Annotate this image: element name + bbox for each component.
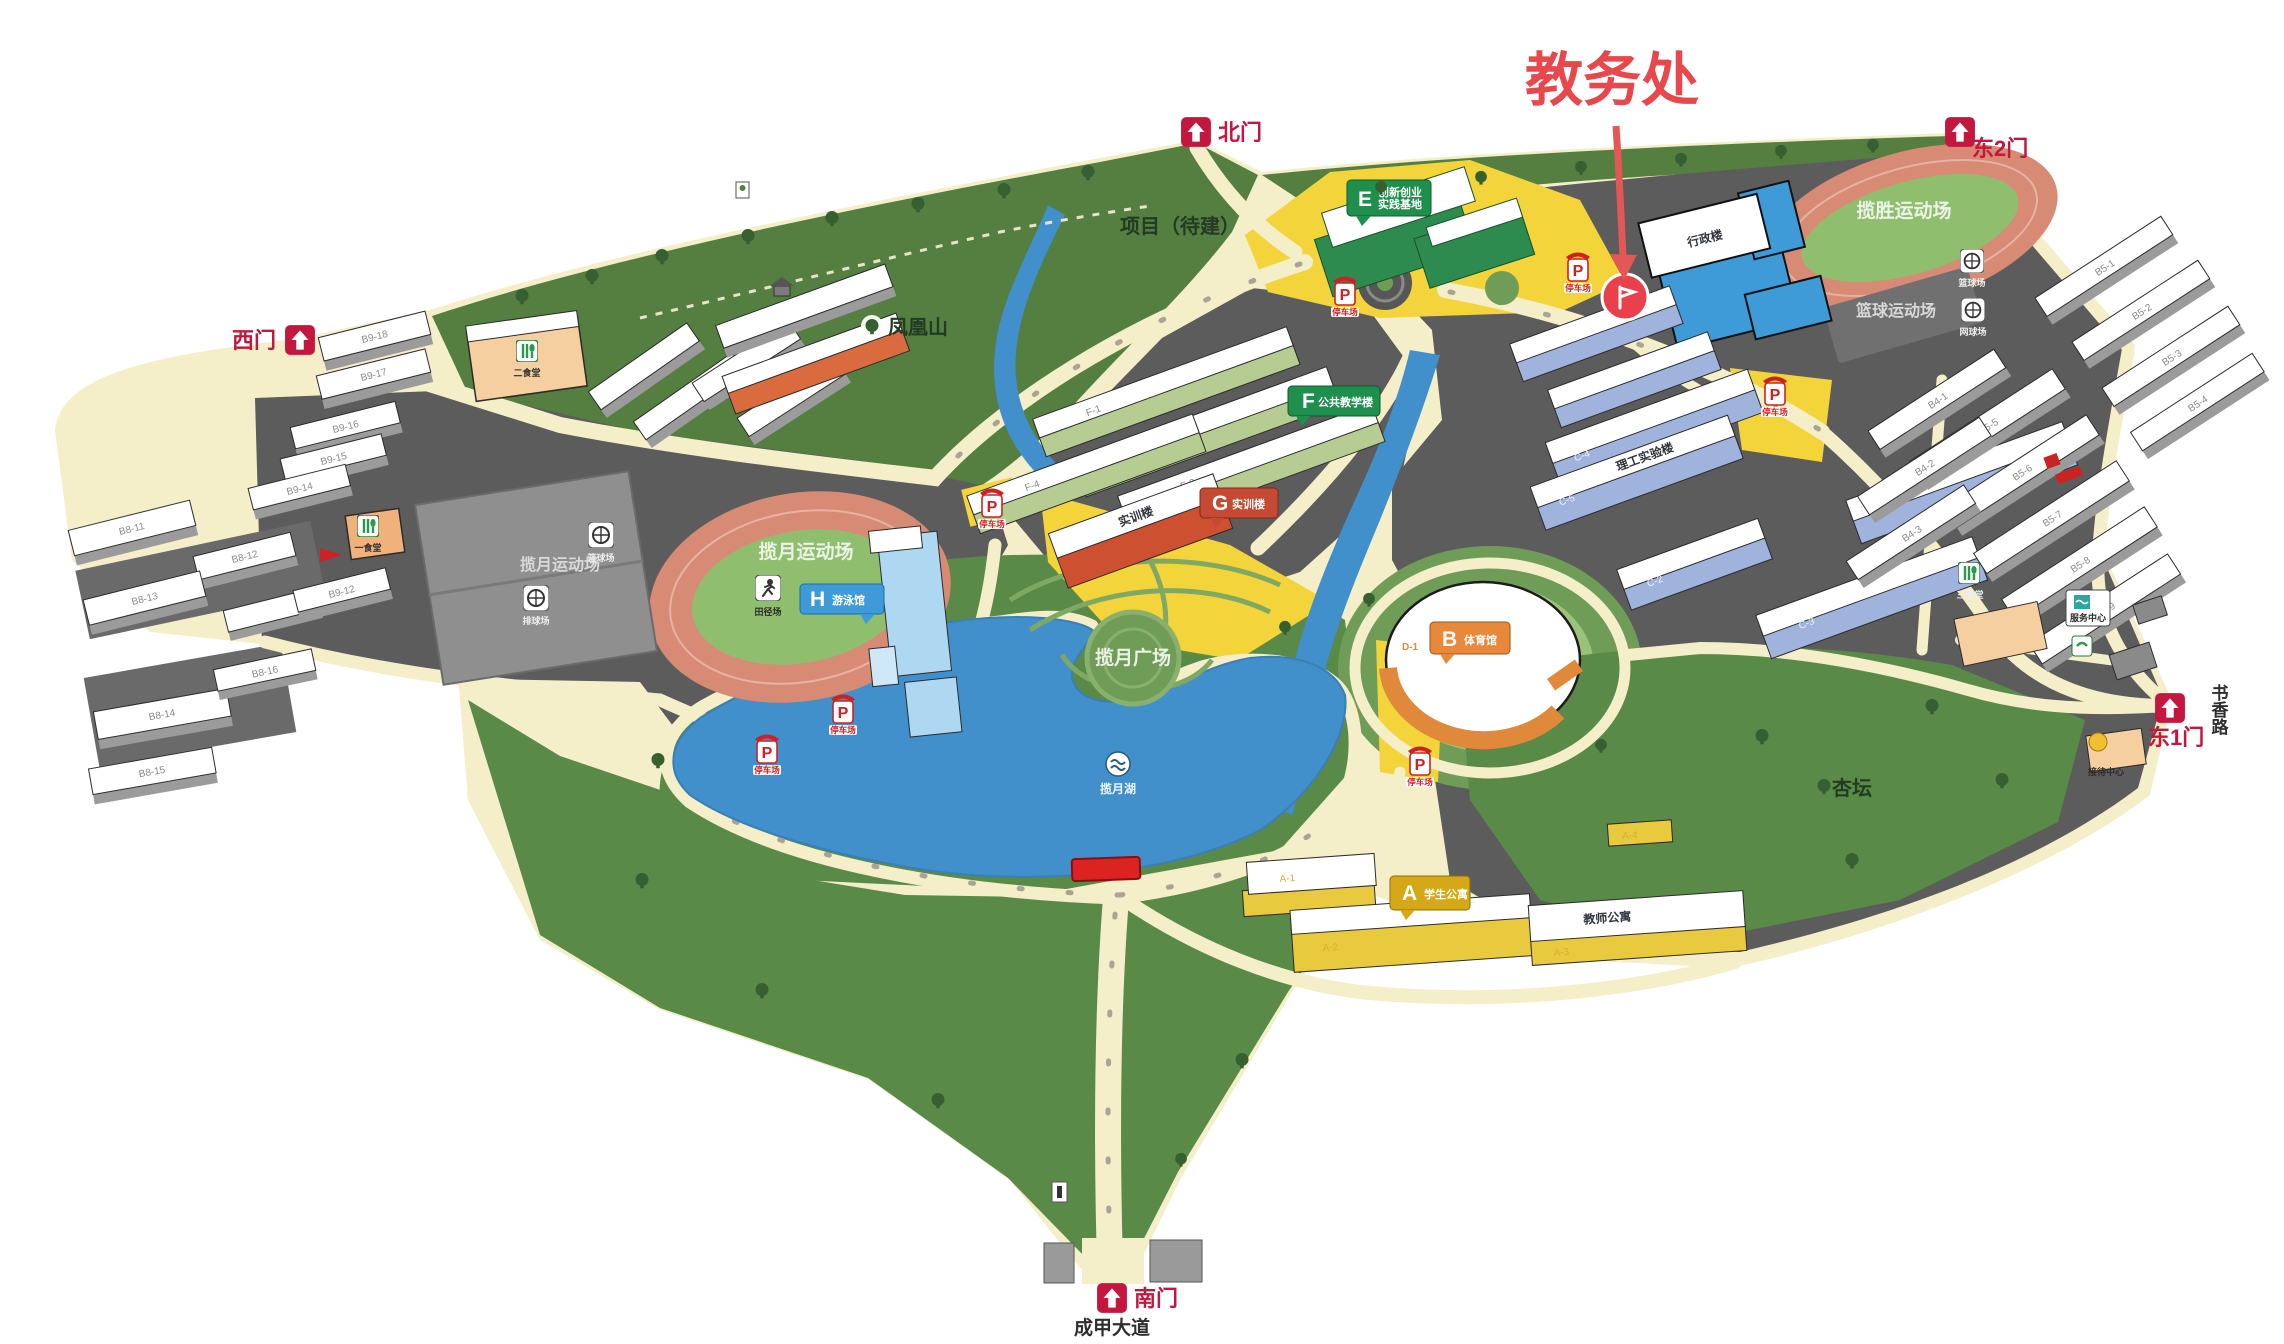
canteen-west-label: 一食堂: [354, 542, 381, 553]
building-code: A-3: [1553, 947, 1570, 959]
target-flag-marker: [1602, 274, 1648, 320]
ne-field-label: 揽胜运动场: [1856, 199, 1951, 222]
volleyball-label: 排球场: [522, 615, 549, 626]
h-label: 游泳馆: [832, 593, 865, 607]
f-letter: F: [1302, 390, 1315, 413]
ne-basketball-icon: [1960, 249, 1984, 273]
runner-icon: [755, 575, 781, 601]
green-service-icon: [2072, 636, 2092, 656]
building-code: A-2: [1322, 942, 1339, 954]
ne-tennis-icon: [1961, 298, 1985, 322]
east2-gate-label: 东2门: [1972, 136, 2028, 161]
h-letter: H: [810, 588, 825, 611]
hill-label-group: 凤凰山: [861, 315, 948, 339]
east1-gate-label: 东1门: [2148, 725, 2204, 750]
g-label: 实训楼: [1232, 497, 1265, 511]
lake-icon: [1106, 752, 1130, 776]
campus-map-canvas: P 停车场: [0, 0, 2284, 1344]
campus-map: P 停车场: [0, 0, 2284, 1344]
b-label: 体育馆: [1464, 633, 1497, 647]
building-code: A-4: [1622, 830, 1639, 842]
east1-gate-icon: [2155, 693, 2185, 723]
north-gate-label: 北门: [1218, 120, 1262, 145]
e-label-line2: 实践基地: [1378, 197, 1422, 211]
parking-marker: [753, 735, 781, 776]
parking-marker: [829, 695, 857, 736]
lake-label: 揽月湖: [1100, 781, 1136, 796]
south-gate-pillar: [1150, 1240, 1202, 1282]
project-label: 项目（待建）: [1120, 214, 1240, 238]
north-gate-icon: [1181, 117, 1211, 147]
g-letter: G: [1212, 492, 1228, 515]
basketball-label: 篮球场: [586, 552, 614, 563]
f-label: 公共教学楼: [1318, 395, 1373, 409]
reception-label: 接待中心: [2088, 766, 2124, 777]
south-avenue-label: 成甲大道: [1074, 1316, 1150, 1339]
west-gate-label: 西门: [232, 328, 276, 353]
volleyball-icon: [523, 585, 549, 611]
west-courts: [415, 471, 657, 685]
canteen-icon: [1958, 562, 1980, 584]
building-code: A-1: [1279, 873, 1296, 885]
a-letter: A: [1402, 882, 1417, 905]
canteen-east-label: 三食堂: [1956, 589, 1983, 600]
lake-stage: [1072, 857, 1141, 881]
building-code: D-1: [1402, 642, 1419, 653]
gate-west: 西门: [232, 325, 315, 355]
e-letter: E: [1358, 188, 1372, 211]
parking-marker: [1331, 277, 1359, 318]
south-gate-icon: [1097, 1283, 1127, 1313]
annotation-text: 教务处: [1525, 48, 1699, 113]
apricot-label: 杏坛: [1831, 777, 1872, 800]
west-field-label: 揽月运动场: [758, 540, 853, 563]
service-label: 服务中心: [2070, 612, 2106, 623]
basketball-icon: [588, 522, 614, 548]
parking-marker: [978, 489, 1006, 530]
west-gate-icon: [285, 325, 315, 355]
canteen-center-label: 二食堂: [513, 367, 540, 378]
plaza-label: 揽月广场: [1095, 646, 1171, 669]
ne-basketball-label: 篮球场: [1957, 277, 1985, 288]
ne-tennis-label: 网球场: [1959, 326, 1986, 337]
canteen-icon: [516, 340, 538, 362]
parking-marker: [1406, 747, 1434, 788]
south-gate-label: 南门: [1134, 1286, 1178, 1311]
hill-label: 凤凰山: [888, 316, 948, 339]
gate-north: 北门: [1181, 117, 1262, 147]
south-gate-road: [1082, 1238, 1144, 1284]
b-letter: B: [1442, 628, 1457, 651]
track-sport-label: 田径场: [754, 606, 781, 617]
south-gate-pillar: [1044, 1243, 1074, 1283]
east2-gate-icon: [1945, 117, 1975, 147]
east-road-label: 书香路: [2209, 684, 2229, 736]
canteen-icon: [357, 515, 379, 537]
a-label: 学生公寓: [1424, 887, 1468, 901]
parking-marker: [1761, 377, 1789, 418]
parking-marker: [1564, 253, 1592, 294]
gate-south: 南门 成甲大道: [1044, 1238, 1202, 1339]
ne-courts-label: 篮球运动场: [1855, 301, 1936, 320]
b-building: D-1: [1386, 582, 1583, 740]
